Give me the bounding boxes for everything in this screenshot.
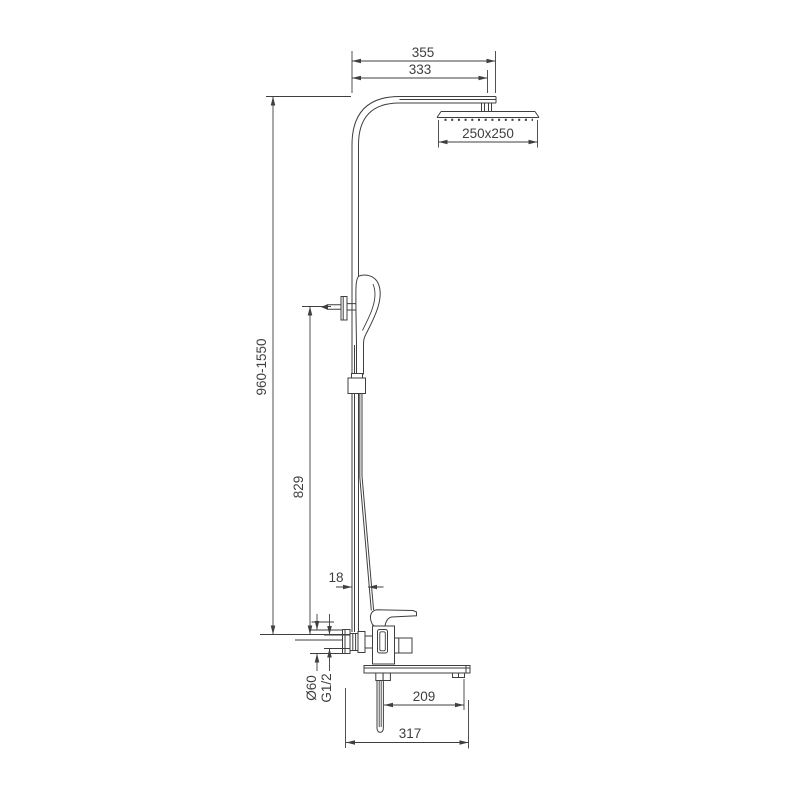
dim-355-label: 355 — [412, 45, 435, 60]
dim-d60-label: Ø60 — [304, 675, 319, 701]
lower-hose-end-cap — [377, 728, 383, 732]
dim-18-label: 18 — [328, 570, 343, 585]
dim-317-arrow-right — [460, 740, 469, 745]
dim-317: 317 — [346, 688, 469, 749]
side-knob — [395, 638, 413, 653]
hose-nut-2 — [383, 673, 390, 681]
dim-209-label: 209 — [413, 689, 436, 704]
dim-317-arrow-left — [346, 740, 355, 745]
bath-mixer — [295, 610, 470, 681]
connection-nut-2 — [358, 632, 365, 653]
dim-height-range: 960-1550 — [254, 97, 351, 635]
connection-nut-1 — [350, 634, 358, 651]
riser-curve-inner — [359, 103, 400, 145]
diverter-slot — [378, 630, 388, 654]
dim-355-arrow-left — [352, 59, 361, 64]
dim-head-size: 250x250 — [439, 120, 538, 148]
lower-hose-outer — [377, 681, 383, 729]
dim-d60-arrow-top — [315, 621, 320, 630]
hand-shower — [356, 275, 380, 374]
artwork: 355 333 250x250 960-1550 829 — [254, 45, 539, 749]
connection-spacer — [365, 636, 373, 648]
shower-hose-lower — [377, 681, 383, 733]
head-plate — [437, 112, 539, 118]
dim-head-arrow-left — [439, 140, 448, 145]
dim-18: 18 — [328, 570, 383, 589]
bracket-screw-tip — [321, 304, 328, 310]
dim-g12-arrow-top — [327, 626, 332, 635]
dim-333-arrow-right — [479, 76, 488, 81]
hose-nut-1 — [376, 673, 383, 681]
dim-829-arrow-top — [308, 307, 313, 316]
bracket-screw-shaft — [328, 305, 341, 309]
dim-333: 333 — [352, 62, 488, 93]
dim-209: 209 — [384, 679, 464, 710]
dim-height-label: 960-1550 — [254, 338, 269, 395]
head-connector-stub — [482, 103, 492, 112]
dim-355-arrow-right — [487, 59, 496, 64]
dim-height-lines — [260, 97, 351, 635]
dim-head-label: 250x250 — [462, 126, 514, 141]
dim-g12-arrow-bottom — [327, 649, 332, 658]
shower-hose-upper — [360, 394, 374, 611]
dim-head-arrow-right — [529, 140, 538, 145]
dim-317-label: 317 — [399, 726, 422, 741]
mixer-lever-handle — [370, 610, 416, 626]
slider-collar — [352, 374, 363, 379]
rain-shower-head — [437, 103, 539, 120]
dim-height-arrow-top — [271, 97, 276, 106]
dim-d60-arrow-bottom — [315, 654, 320, 663]
dim-height-arrow-bottom — [271, 626, 276, 635]
dim-829: 829 — [291, 307, 331, 635]
dim-209-arrow-left — [384, 703, 393, 708]
shower-system-drawing: 355 333 250x250 960-1550 829 — [0, 0, 800, 800]
lower-hose-inner — [379, 681, 381, 728]
dim-333-label: 333 — [409, 62, 432, 77]
dim-333-arrow-left — [352, 76, 361, 81]
bracket-flange — [341, 297, 347, 321]
dim-18-arrow-left — [343, 585, 352, 590]
hand-shower-body — [356, 275, 380, 374]
slider-block — [348, 378, 366, 394]
dim-209-arrow-right — [455, 703, 464, 708]
spout-bar — [364, 666, 470, 674]
dim-829-label: 829 — [291, 476, 306, 499]
slider-holder — [348, 374, 366, 394]
dim-g12-label: G1/2 — [319, 673, 334, 702]
wall-escutcheon — [343, 630, 351, 654]
technical-drawing-page: 355 333 250x250 960-1550 829 — [0, 0, 800, 800]
shower-arm — [400, 97, 497, 104]
dim-829-lines — [302, 307, 331, 635]
hose-line-right — [362, 394, 374, 611]
